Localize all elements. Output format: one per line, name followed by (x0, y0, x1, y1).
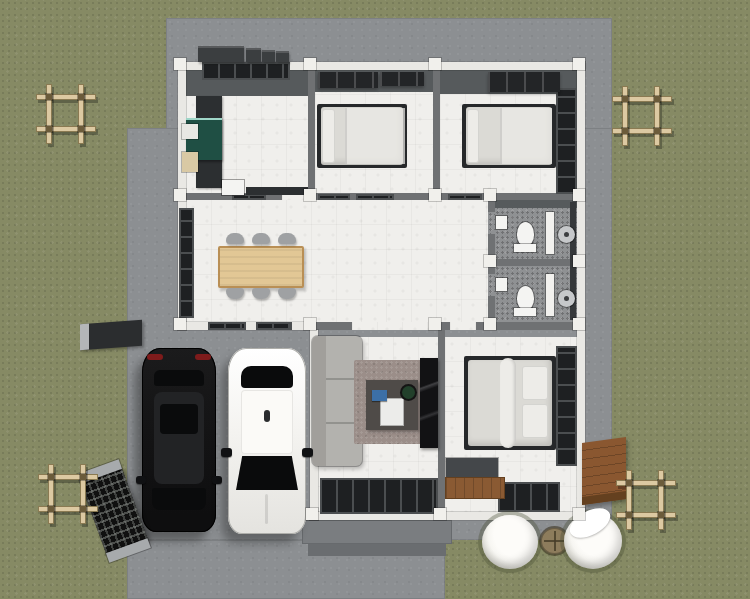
white-tray (380, 398, 404, 426)
pergola-beam (36, 126, 96, 132)
sedan-hood-crease (265, 494, 268, 524)
bedroom3-east-window (556, 346, 577, 466)
water-heater-box (182, 152, 198, 172)
wall-bath-divider (488, 259, 577, 266)
kitchen-top-window (202, 62, 290, 80)
column-cap (174, 58, 186, 70)
bathroom1-shower-head (558, 226, 575, 243)
pergola-frame-top-right (612, 86, 672, 146)
column-cap (306, 508, 318, 520)
suv-rear-window (154, 370, 204, 386)
pergola-post (48, 474, 54, 480)
coffee-table (366, 380, 418, 430)
pergola-beam (612, 128, 672, 134)
pergola-beam (622, 86, 628, 146)
potted-plant (402, 386, 415, 399)
pergola-post (78, 126, 84, 132)
bathroom1-sink (496, 216, 507, 229)
bedroom2-east-window (556, 88, 577, 194)
porch-step (308, 544, 446, 556)
column-cap (429, 58, 441, 70)
wall-kitchen-bedroom1 (308, 62, 315, 200)
dining-table (218, 246, 304, 288)
pergola-post (622, 96, 628, 102)
column-cap (573, 508, 585, 520)
tv-console (420, 358, 438, 448)
column-cap (304, 58, 316, 70)
pergola-beam (78, 84, 84, 144)
bathroom2-toilet (517, 286, 534, 310)
sedan-mirror-right (302, 448, 313, 457)
column-cap (573, 318, 585, 330)
floor-plan-render (0, 0, 750, 599)
pergola-beam (658, 470, 664, 530)
column-cap (304, 318, 316, 330)
hall-transom-a (318, 194, 350, 200)
column-cap (484, 255, 496, 267)
pergola-post (46, 126, 52, 132)
ac-unit (262, 50, 275, 62)
bedroom2-duvet (500, 108, 552, 164)
pergola-post (654, 96, 660, 102)
bedroom3-pillow-b (522, 404, 548, 438)
bathroom2-sink (496, 278, 507, 291)
pergola-beam (80, 464, 86, 524)
column-cap (573, 58, 585, 70)
bedroom1-duvet (345, 108, 405, 164)
pergola-beam (626, 470, 632, 530)
bedroom1-wardrobe-b (380, 72, 424, 86)
ac-unit (198, 46, 244, 62)
pergola-post (78, 94, 84, 100)
bedroom3-south-window (498, 482, 560, 512)
sofa-backrest (312, 336, 326, 466)
bedroom3-blanket-roll (500, 358, 516, 448)
blue-book (372, 390, 387, 401)
dining-chair (278, 233, 296, 244)
suv-mirror-left (136, 476, 146, 484)
dining-south-window-b (256, 322, 292, 330)
fence-wall-stub (80, 320, 142, 350)
ac-unit (276, 51, 289, 62)
pergola-frame-top-left (36, 84, 96, 144)
sedan-windshield (236, 456, 298, 490)
bedroom1-pillows (322, 109, 335, 163)
bathroom2-tank (514, 308, 536, 316)
sedan-rear-window (241, 366, 293, 388)
refrigerator (182, 124, 198, 139)
pergola-beam (616, 480, 676, 486)
column-cap (174, 318, 186, 330)
fence-stub-cap (80, 324, 89, 351)
column-cap (429, 189, 441, 201)
suv-taillight-right (195, 354, 211, 360)
black-suv (142, 348, 216, 532)
bedroom2-wardrobe (488, 72, 560, 92)
column-cap (174, 189, 186, 201)
pergola-post (46, 94, 52, 100)
sphere-planter-left (482, 515, 538, 569)
bedroom1-wardrobe (318, 72, 378, 88)
bathroom-north-wall-face (495, 200, 577, 208)
opening-hall-bedroom3 (450, 322, 476, 330)
suv-mirror-right (212, 476, 222, 484)
pergola-post (622, 128, 628, 134)
kitchen-sink (222, 180, 244, 195)
bathroom1-tank (514, 244, 536, 252)
opening-bath2-door (488, 274, 495, 296)
wall-bedroom1-bedroom2 (433, 62, 440, 200)
dining-chair (226, 233, 244, 244)
ac-unit (246, 48, 261, 62)
column-cap (434, 508, 446, 520)
front-porch (302, 520, 452, 544)
suv-windshield (152, 488, 206, 510)
pergola-post (80, 506, 86, 512)
dining-chair (252, 233, 270, 244)
bedroom3-pillow-a (522, 366, 548, 400)
wall-living-bedroom3 (438, 330, 445, 512)
pergola-frame-bottom-left (38, 464, 98, 524)
kitchen-south-counter (246, 187, 308, 195)
wall-hall-south (308, 322, 585, 330)
pergola-post (48, 506, 54, 512)
sedan-antenna (264, 410, 270, 422)
bathroom2-shower-head (558, 290, 575, 307)
column-cap (573, 189, 585, 201)
bathroom2-door (546, 274, 554, 316)
pergola-beam (616, 512, 676, 518)
bedroom3-wooden-bench (446, 478, 504, 498)
pergola-beam (38, 506, 98, 512)
opening-bath1-door (488, 212, 495, 234)
pergola-post (626, 480, 632, 486)
suv-taillight-left (147, 354, 163, 360)
bedroom2-pillows (467, 109, 479, 163)
suv-sunroof (160, 404, 198, 434)
pergola-post (654, 128, 660, 134)
pergola-post (658, 512, 664, 518)
suv-roof (154, 392, 204, 484)
dining-west-window (179, 208, 194, 318)
pergola-beam (48, 464, 54, 524)
bathroom1-door (546, 212, 554, 254)
column-cap (304, 189, 316, 201)
pergola-beam (38, 474, 98, 480)
column-cap (573, 255, 585, 267)
pergola-beam (612, 96, 672, 102)
hall-transom-c (448, 194, 482, 200)
column-cap (484, 189, 496, 201)
sphere-planter-right (564, 513, 622, 569)
pergola-post (658, 480, 664, 486)
column-cap (429, 318, 441, 330)
sedan-roof (241, 390, 293, 454)
pergola-beam (36, 94, 96, 100)
hall-transom-b (356, 194, 394, 200)
opening-hall-living (352, 322, 432, 330)
dining-south-window-a (208, 322, 246, 330)
bathroom1-toilet (517, 222, 534, 246)
pergola-post (80, 474, 86, 480)
pergola-beam (46, 84, 52, 144)
column-cap (484, 318, 496, 330)
sedan-mirror-left (221, 448, 232, 457)
pergola-frame-bottom-right (616, 470, 676, 530)
living-south-glass-doors (320, 478, 438, 514)
pergola-beam (654, 86, 660, 146)
pergola-post (626, 512, 632, 518)
white-sedan (228, 348, 306, 534)
